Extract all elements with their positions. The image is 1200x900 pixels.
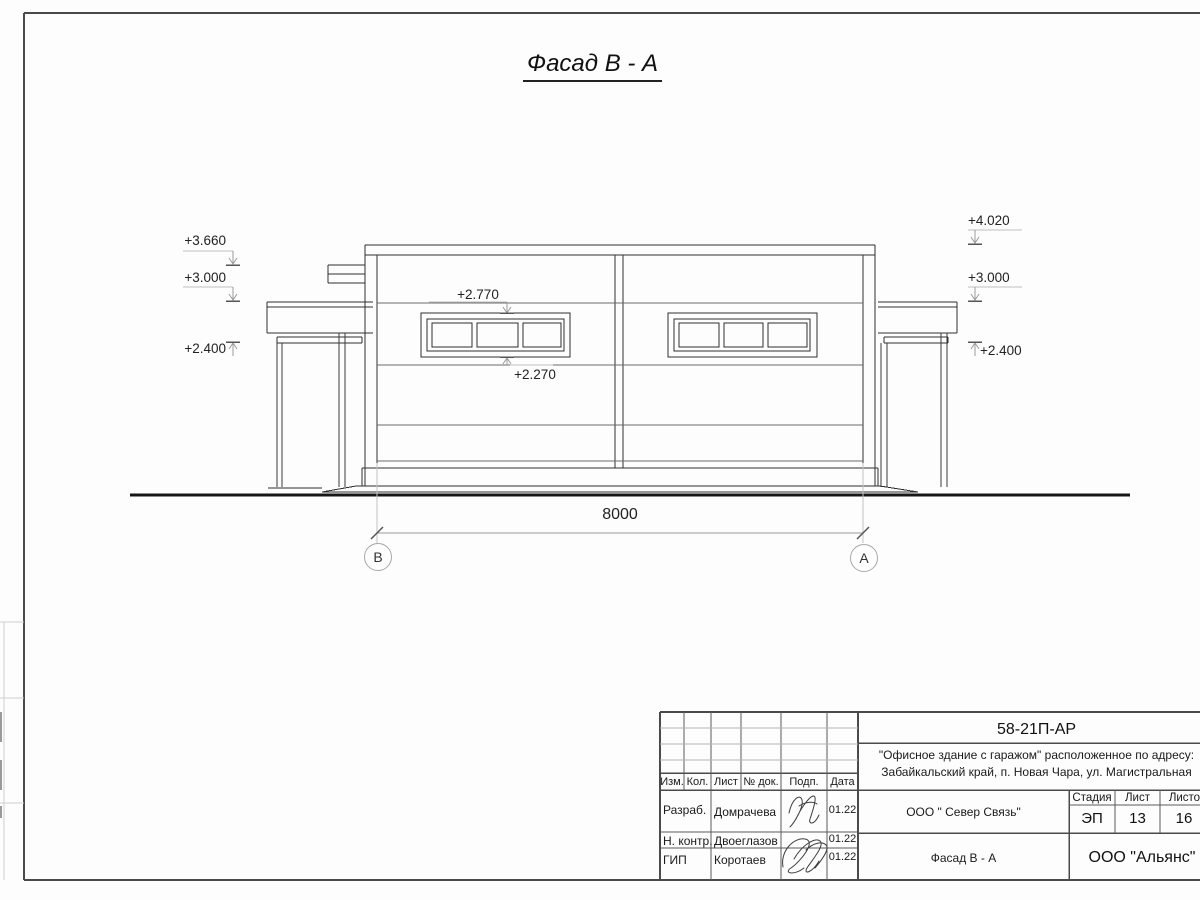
row-name-nkontr: Двоеглазов: [714, 835, 778, 849]
base-plinth: [268, 486, 918, 492]
roof-protrusion: [328, 265, 365, 283]
row-name-gip: Коротаев: [714, 854, 766, 868]
company-name: ООО "Альянс": [1069, 849, 1200, 867]
row-date-razrab: 01.22: [827, 804, 858, 817]
signatures: [783, 796, 827, 873]
signature-gip: [783, 839, 827, 873]
col-header-list: Лист: [711, 776, 741, 789]
row-role-gip: ГИП: [663, 854, 687, 868]
col-header-ndok: № док.: [741, 776, 781, 789]
dimension-line: [371, 463, 869, 543]
client-name: ООО " Север Связь": [858, 806, 1069, 820]
row-role-nkontr: Н. контр.: [663, 835, 713, 849]
row-role-razrab: Разраб.: [663, 804, 706, 818]
doc-number: 58-21П-АР: [858, 721, 1200, 739]
sheet-value: 13: [1115, 810, 1160, 827]
row-date-nkontr: 01.22: [827, 833, 858, 846]
sheets-value: 16: [1160, 810, 1200, 827]
left-window: [421, 313, 570, 357]
col-header-data: Дата: [827, 776, 858, 789]
level-mark-window-sill: +2.270: [505, 367, 565, 383]
right-canopy: [878, 302, 957, 487]
stage-label: Стадия: [1069, 792, 1115, 805]
project-address-line1: "Офисное здание с гаражом" расположенное…: [858, 749, 1200, 763]
drawing-name: Фасад В - А: [858, 852, 1069, 866]
level-mark-window-head: +2.770: [448, 287, 508, 303]
row-name-razrab: Домрачева: [714, 806, 776, 820]
drawing-sheet: Фасад В - А +3.660 +3.000 +2.400 +4.020 …: [0, 0, 1200, 900]
col-header-izm: Изм.: [660, 776, 684, 789]
axis-bubble-a: А: [850, 544, 878, 572]
left-margin-stamp: [0, 622, 24, 880]
col-header-podp: Подп.: [781, 776, 827, 789]
level-mark-lines: [183, 230, 1022, 365]
level-mark-left-mid: +3.000: [172, 270, 226, 286]
level-mark-right-top: +4.020: [968, 213, 1010, 229]
stage-value: ЭП: [1069, 810, 1115, 827]
signature-razrab: [789, 796, 819, 827]
dimension-value: 8000: [575, 506, 665, 524]
row-date-gip: 01.22: [827, 851, 858, 864]
level-mark-right-low: +2.400: [980, 343, 1022, 359]
right-window: [668, 313, 817, 357]
siding-lines: [377, 303, 863, 461]
col-header-kol: Кол.: [684, 776, 711, 789]
left-canopy: [267, 302, 373, 487]
project-address-line2: Забайкальский край, п. Новая Чара, ул. М…: [858, 766, 1200, 780]
sheet-label: Лист: [1115, 792, 1160, 805]
level-mark-left-top: +3.660: [172, 233, 226, 249]
sheets-label: Листов: [1160, 792, 1200, 805]
sheet-title: Фасад В - А: [523, 50, 662, 82]
level-mark-right-mid: +3.000: [968, 270, 1010, 286]
axis-bubble-b: В: [364, 543, 392, 571]
level-mark-left-low: +2.400: [172, 341, 226, 357]
